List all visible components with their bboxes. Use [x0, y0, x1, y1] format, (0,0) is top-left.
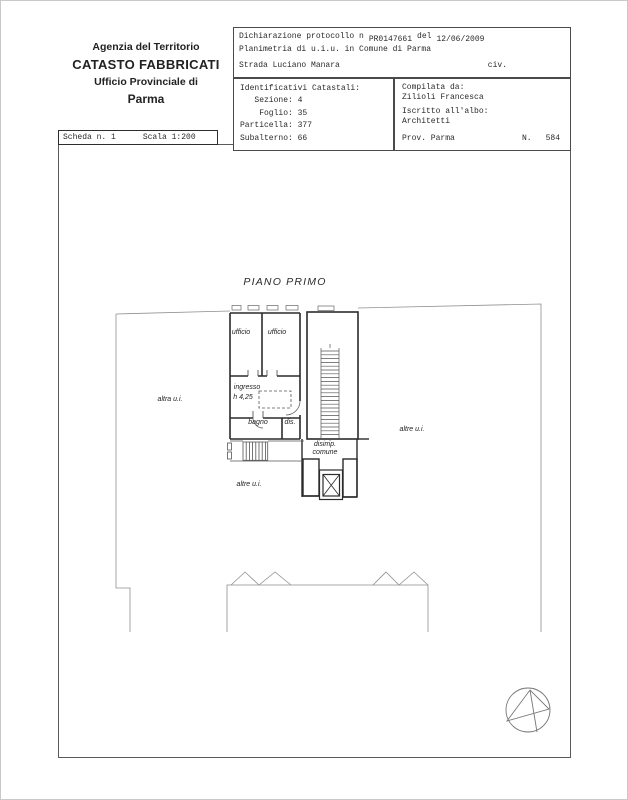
cadastral-identifiers-box: Identificativi Catastali: Sezione: 4 Fog… [233, 78, 394, 151]
room-label-dis: dis. [285, 419, 296, 427]
cadastral-foglio: Foglio: 35 [240, 108, 387, 120]
cadastral-title: Identificativi Catastali: [240, 83, 387, 95]
cadastral-particella: Particella: 377 [240, 120, 387, 132]
small-stairs [228, 441, 305, 461]
compiler-box: Compilata da: Zilioli Francesca Iscritto… [394, 78, 571, 151]
albo-label: Iscritto all'albo: [402, 107, 563, 117]
area-label-altre-ui-right: altre u.i. [400, 426, 425, 434]
dashed-opening [259, 391, 291, 408]
cadastral-document-page: Agenzia del Territorio CATASTO FABBRICAT… [0, 0, 628, 800]
stairs [321, 344, 339, 441]
room-height-label: h 4,25 [233, 394, 252, 402]
registration-number: N.584 [522, 134, 560, 144]
protocol-row: Dichiarazione protocollo nPR0147661del12… [239, 32, 565, 41]
street-name: Strada Luciano Manara [239, 61, 340, 70]
protocol-date: 12/06/2009 [436, 35, 484, 44]
sheet-scale: Scala 1:200 [143, 133, 196, 142]
planimetria-row: Planimetria di u.i.u. in Comune di Parma [239, 45, 565, 54]
elevator [320, 470, 343, 500]
room-label-ufficio-1: ufficio [232, 329, 250, 337]
area-label-altra-ui-left: altra u.i. [158, 396, 183, 404]
window-marks [232, 306, 334, 311]
north-arrow-icon [506, 688, 550, 732]
cadastral-subalterno: Subalterno: 66 [240, 133, 387, 145]
street-row: Strada Luciano Manara civ. [239, 61, 565, 70]
albo-value: Architetti [402, 117, 563, 127]
room-label-disimp-2: comune [313, 449, 338, 457]
protocol-label: Dichiarazione protocollo n [239, 32, 364, 41]
sheet-info-box: Scheda n. 1 Scala 1:200 [58, 130, 218, 145]
cadastral-sezione: Sezione: 4 [240, 95, 387, 107]
lower-building-outline [227, 572, 428, 632]
area-label-altre-ui-bottom: altre u.i. [237, 481, 262, 489]
room-label-ufficio-2: ufficio [268, 329, 286, 337]
compiler-name: Zilioli Francesca [402, 93, 563, 103]
prov-label: Prov. Parma [402, 134, 455, 144]
del-label: del [417, 32, 431, 41]
prov-row: Prov. Parma N.584 [402, 134, 563, 144]
room-label-ingresso: ingresso [234, 384, 260, 392]
plan-boundary-lines [116, 304, 541, 632]
civ-label: civ. [488, 61, 507, 70]
floor-title: PIANO PRIMO [243, 278, 326, 286]
protocol-number: PR0147661 [369, 35, 412, 44]
declaration-box: Dichiarazione protocollo nPR0147661del12… [233, 27, 571, 78]
sheet-number: Scheda n. 1 [63, 133, 116, 142]
compiler-label: Compilata da: [402, 83, 563, 93]
room-label-bagno: bagno [248, 419, 267, 427]
